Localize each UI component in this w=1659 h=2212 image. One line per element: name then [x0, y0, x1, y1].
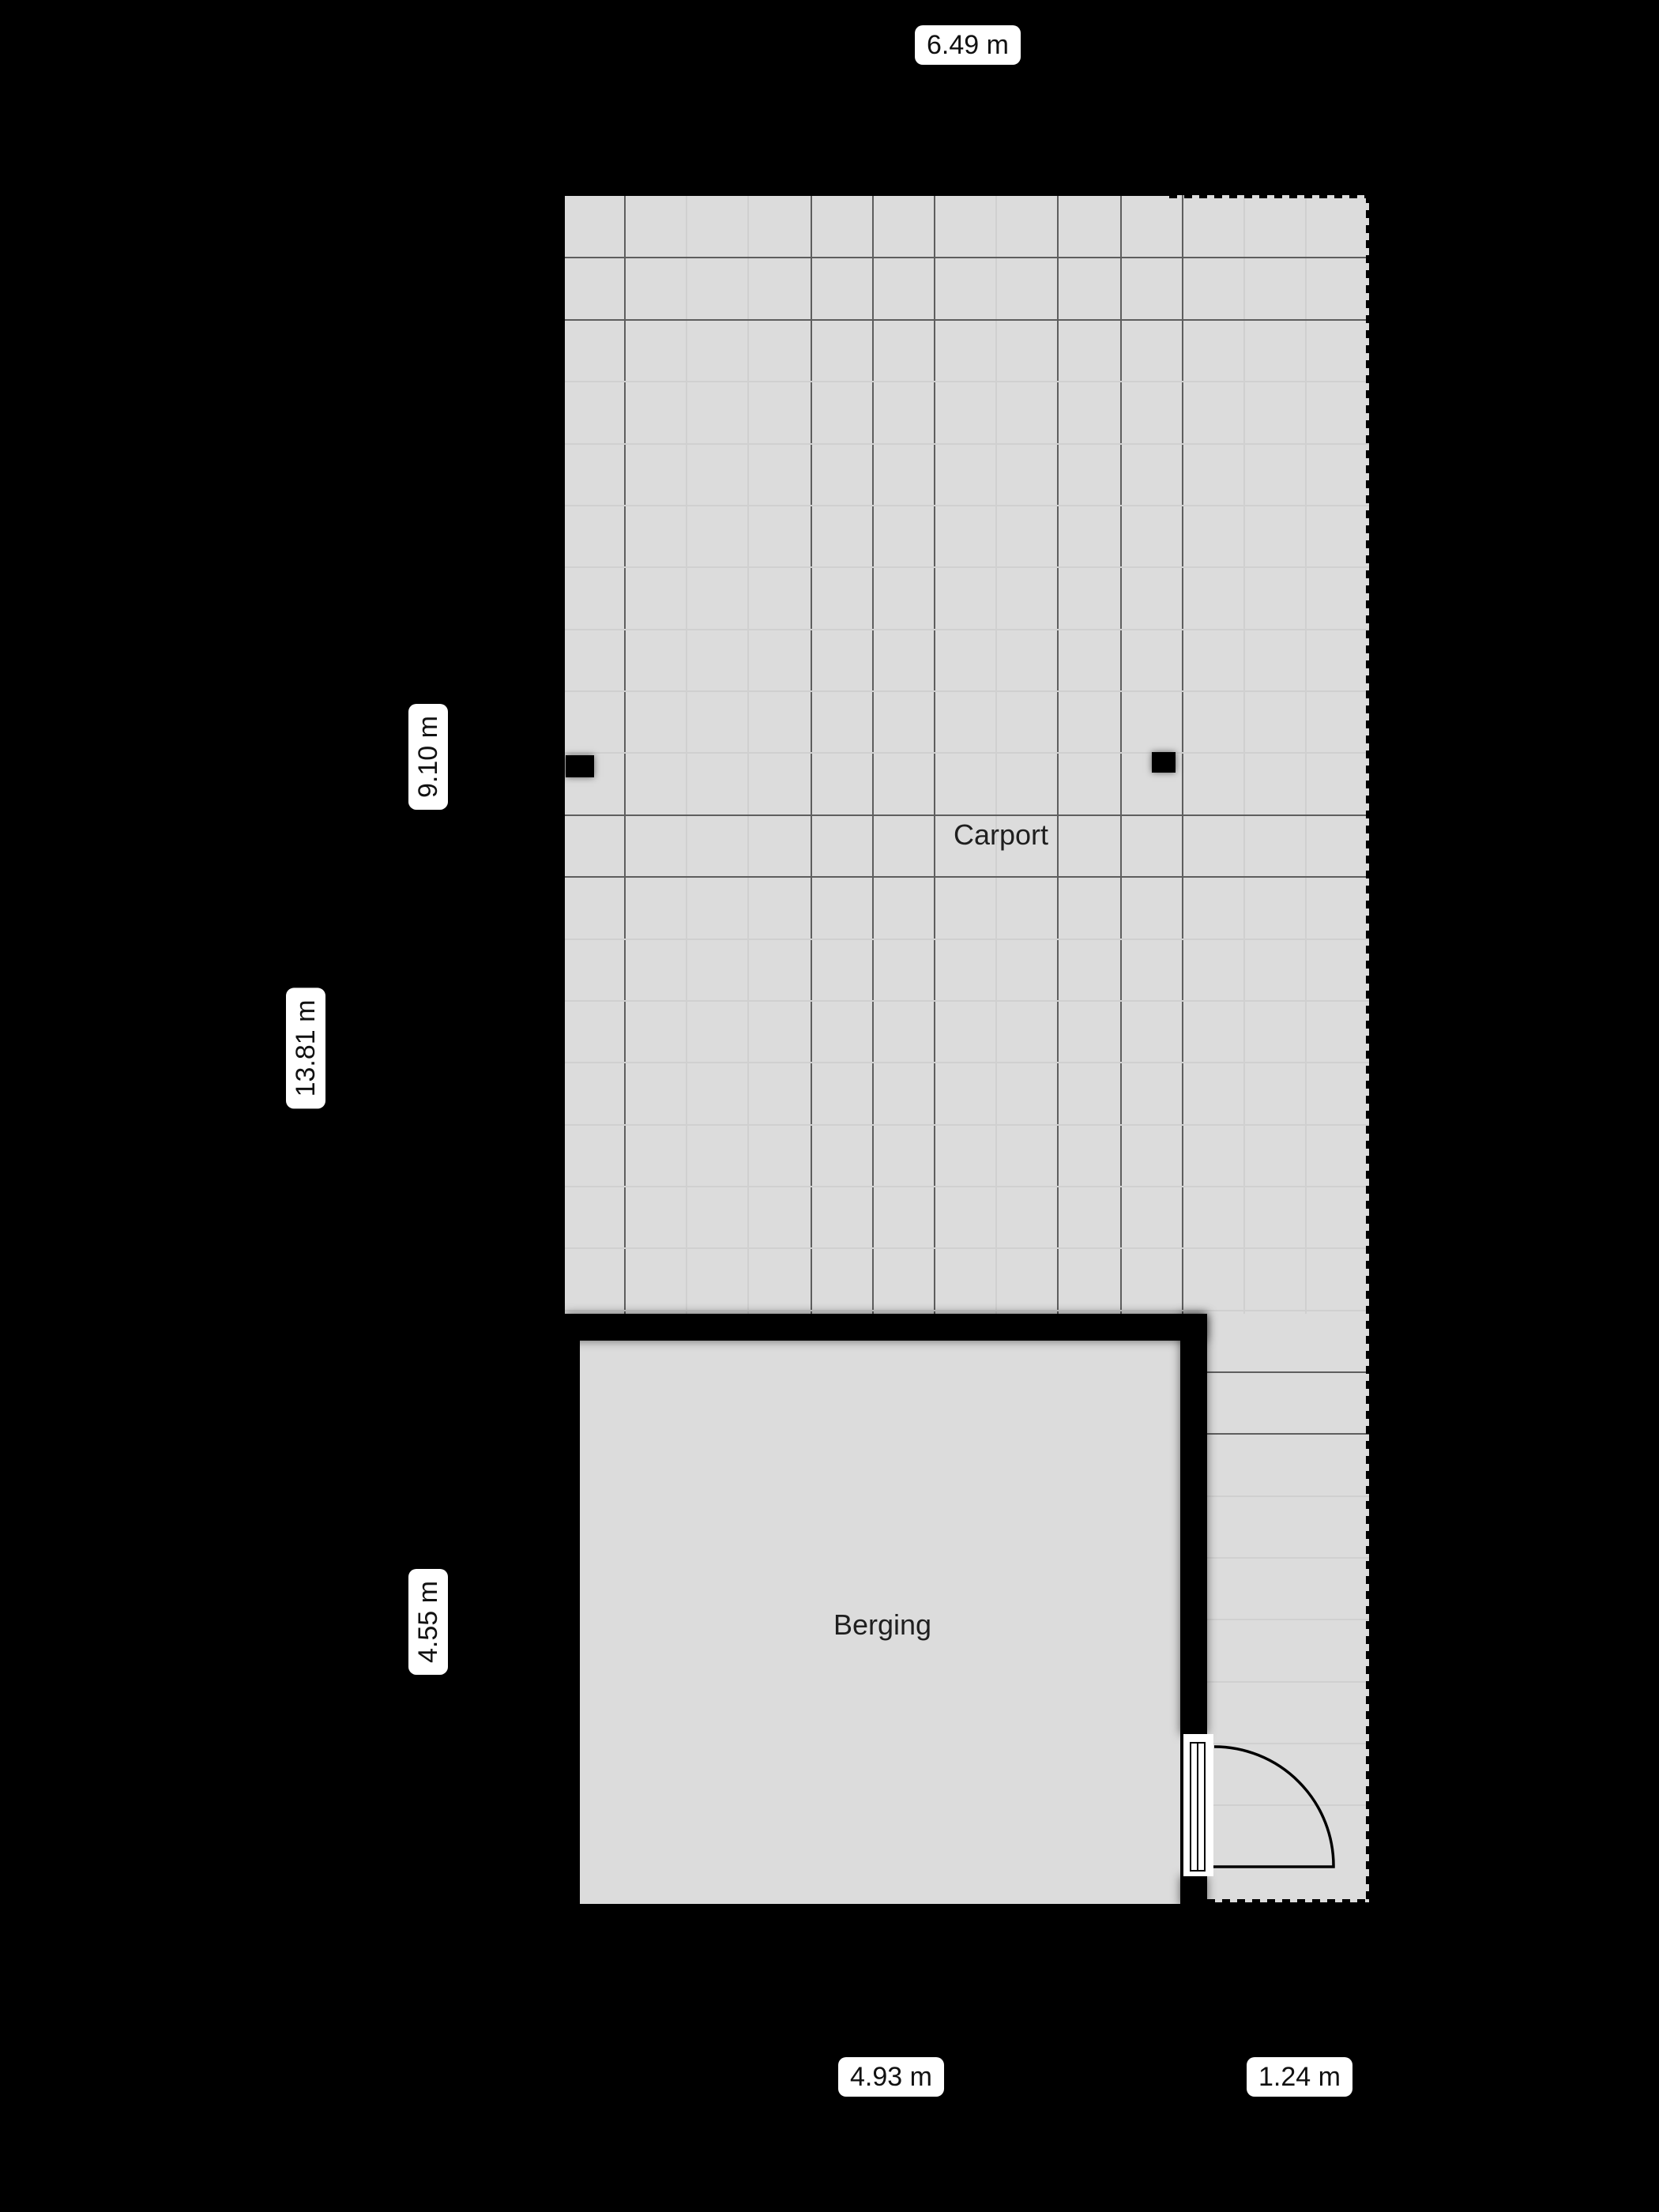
grid-line [934, 195, 935, 1314]
grid-line [1182, 195, 1183, 1314]
grid-line [565, 319, 1369, 321]
carport-post-right [1152, 752, 1176, 773]
berging-right-wall-lower [1180, 1876, 1207, 1905]
grid-line [1120, 195, 1122, 1314]
carport-right-open-edge [1366, 195, 1369, 1902]
grid-line [1207, 1681, 1369, 1683]
grid-line [1057, 195, 1059, 1314]
grid-line [747, 195, 749, 1314]
berging-top-wall [565, 1314, 1207, 1341]
grid-line [565, 257, 1369, 258]
grid-line [1207, 1433, 1369, 1435]
grid-line [565, 876, 1369, 878]
berging-right-wall-upper [1180, 1314, 1207, 1734]
grid-line [565, 1310, 1369, 1311]
dimension-label-left-lower-height: 4.55 m [408, 1569, 448, 1675]
grid-line [565, 505, 1369, 506]
grid-line [565, 752, 1369, 754]
grid-line [565, 1124, 1369, 1126]
dimension-label-bottom-left-width: 4.93 m [838, 2057, 944, 2097]
door-swing-arc [1185, 1730, 1359, 1880]
grid-line [565, 566, 1369, 568]
grid-line [565, 1247, 1369, 1249]
carport-top-open-edge [1169, 195, 1369, 198]
carport-top-edge [563, 193, 1169, 196]
room-label-carport: Carport [954, 818, 1048, 852]
grid-line [565, 1062, 1369, 1063]
grid-line [565, 1000, 1369, 1002]
carport-post-left [566, 755, 594, 777]
grid-line [624, 195, 626, 1314]
grid-line [565, 1186, 1369, 1187]
grid-line [1207, 1619, 1369, 1620]
grid-line [1207, 1371, 1369, 1373]
grid-line [1207, 1495, 1369, 1497]
grid-line [565, 690, 1369, 692]
grid-line [1207, 1557, 1369, 1559]
carport-floor [565, 195, 1369, 1314]
dimension-label-left-upper-height: 9.10 m [408, 704, 448, 810]
grid-line [995, 195, 997, 1314]
grid-line [686, 195, 687, 1314]
grid-line [565, 629, 1369, 630]
grid-line [811, 195, 812, 1314]
dimension-label-top-width: 6.49 m [915, 25, 1021, 65]
grid-line [1243, 195, 1245, 1314]
floorplan-canvas: Carport Berging 6.49 m 9.10 m 13.81 m 4.… [0, 0, 1659, 2212]
carport-bottom-open-edge [1207, 1899, 1369, 1902]
grid-line [1305, 195, 1307, 1314]
grid-line [565, 443, 1369, 445]
grid-line [565, 939, 1369, 940]
grid-line [565, 814, 1369, 816]
room-label-berging: Berging [833, 1608, 931, 1642]
dimension-label-left-total-height: 13.81 m [286, 988, 325, 1109]
berging-bottom-wall [565, 1904, 1207, 1931]
grid-line [565, 381, 1369, 382]
dimension-label-bottom-right-width: 1.24 m [1247, 2057, 1352, 2097]
grid-line [872, 195, 874, 1314]
